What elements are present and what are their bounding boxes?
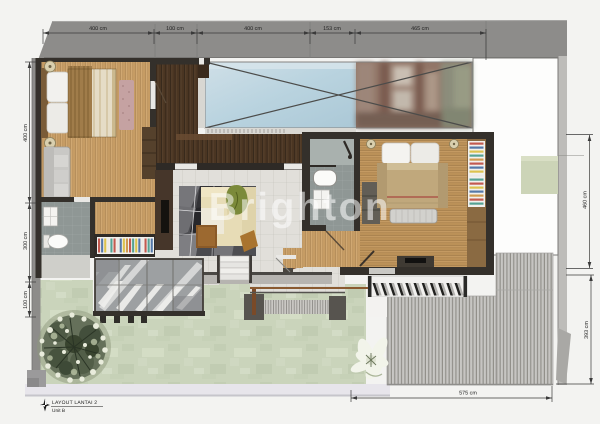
svg-text:400 cm: 400 cm	[89, 26, 107, 32]
svg-text:153 cm: 153 cm	[323, 26, 341, 32]
svg-text:400 cm: 400 cm	[23, 124, 29, 142]
svg-text:Brighton: Brighton	[209, 186, 391, 229]
svg-text:393 cm: 393 cm	[584, 321, 590, 339]
svg-text:575 cm: 575 cm	[459, 391, 477, 397]
svg-text:400 cm: 400 cm	[244, 26, 262, 32]
svg-text:100 cm: 100 cm	[23, 291, 29, 309]
svg-text:100 cm: 100 cm	[166, 26, 184, 32]
svg-text:LAYOUT LANTAI 2: LAYOUT LANTAI 2	[52, 400, 97, 406]
svg-text:460 cm: 460 cm	[583, 191, 589, 209]
svg-text:465 cm: 465 cm	[411, 26, 429, 32]
svg-text:300 cm: 300 cm	[23, 232, 29, 250]
svg-text:Unit B: Unit B	[52, 408, 65, 414]
